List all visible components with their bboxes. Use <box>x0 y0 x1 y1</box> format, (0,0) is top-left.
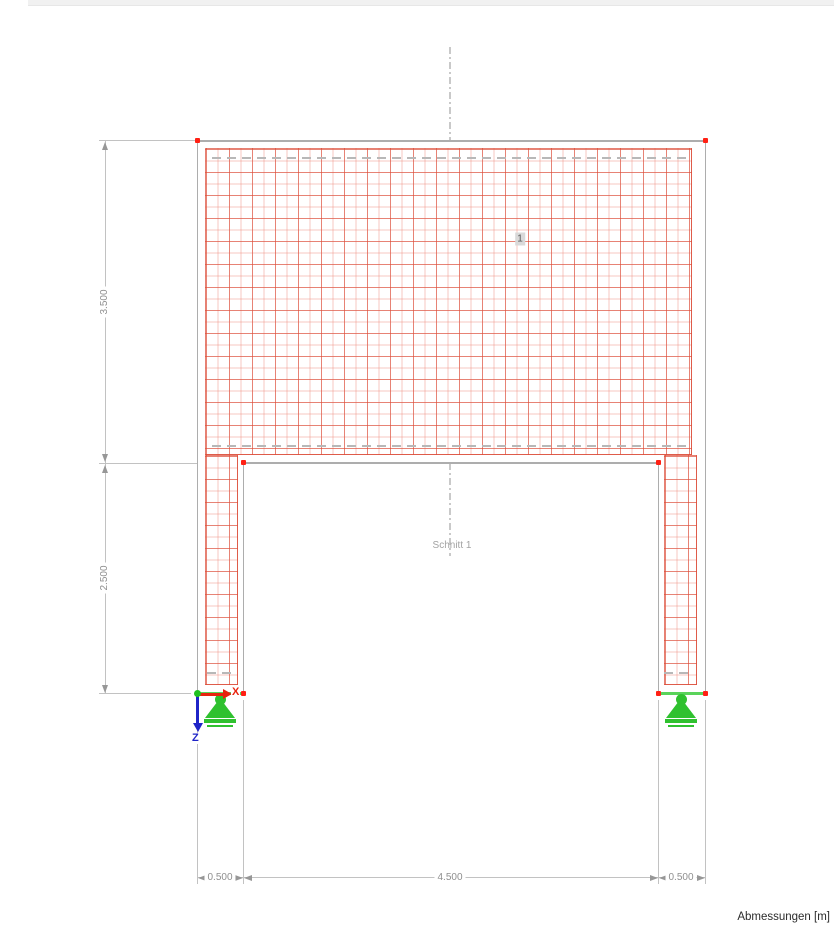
dim-arrow-icon <box>102 454 108 462</box>
section-label[interactable]: Schnitt 1 <box>410 540 494 552</box>
dim-label-width-right[interactable]: 0.500 <box>665 872 696 884</box>
member-axis-dash-left-base <box>207 672 237 674</box>
node-top-left[interactable] <box>195 138 200 143</box>
dim-ext-x1 <box>243 700 244 884</box>
toolbar-edge-strip <box>28 0 834 6</box>
hinged-support-icon[interactable] <box>205 703 235 718</box>
axis-z-label: Z <box>191 733 200 744</box>
axis-z-arrowhead-icon <box>193 723 203 732</box>
dim-ext-bottom <box>99 693 191 694</box>
hinged-support-icon[interactable] <box>666 703 696 718</box>
axis-z-arrow <box>196 694 199 723</box>
node-base-right-outer[interactable] <box>703 691 708 696</box>
dim-ext-x2 <box>658 700 659 884</box>
hinged-support-icon <box>207 725 233 727</box>
dim-label-width-middle[interactable]: 4.500 <box>434 872 465 884</box>
fe-mesh-surface-right-column[interactable] <box>664 455 697 685</box>
dim-label-height-lower[interactable]: 2.500 <box>99 562 111 593</box>
axis-x-label: X <box>231 687 240 698</box>
hinged-support-icon <box>668 725 694 727</box>
edge-right[interactable] <box>705 140 707 694</box>
dim-line-left <box>105 141 106 694</box>
axis-x-arrow <box>197 693 223 696</box>
edge-left[interactable] <box>197 140 199 694</box>
member-axis-dash-opening <box>212 445 691 447</box>
hinged-support-icon <box>665 719 697 723</box>
dim-arrow-icon <box>244 875 252 881</box>
dim-ext-mid <box>99 463 197 464</box>
edge-top[interactable] <box>197 140 705 142</box>
edge-opening-right[interactable] <box>658 463 660 694</box>
member-axis-dash-top <box>212 157 691 159</box>
dim-ext-x3 <box>705 700 706 884</box>
dim-arrow-icon <box>102 685 108 693</box>
model-viewport[interactable]: 3.500 2.500 0.500 4.500 0.500 X Z <box>0 0 834 934</box>
dim-arrow-icon <box>102 142 108 150</box>
hinged-support-icon <box>204 719 236 723</box>
edge-opening-top[interactable] <box>243 462 658 464</box>
dim-arrow-icon <box>650 875 658 881</box>
node-top-right[interactable] <box>703 138 708 143</box>
dim-label-width-left[interactable]: 0.500 <box>204 872 235 884</box>
member-axis-dash-right-base <box>664 672 694 674</box>
dim-arrow-icon <box>102 465 108 473</box>
units-label: Abmessungen [m] <box>737 910 830 924</box>
surface-number-label[interactable]: 1 <box>515 233 525 246</box>
section-line-upper <box>449 47 451 140</box>
dim-ext-top <box>99 140 197 141</box>
node-opening-top-right[interactable] <box>656 460 661 465</box>
node-base-right-inner[interactable] <box>656 691 661 696</box>
fe-mesh-surface-left-column[interactable] <box>205 455 238 685</box>
node-base-left-inner[interactable] <box>241 691 246 696</box>
node-opening-top-left[interactable] <box>241 460 246 465</box>
dim-arrow-icon <box>235 875 243 881</box>
edge-opening-left[interactable] <box>243 463 245 694</box>
origin-node[interactable] <box>194 690 201 697</box>
dim-label-height-upper[interactable]: 3.500 <box>99 286 111 317</box>
fe-mesh-surface-slab[interactable] <box>205 148 692 455</box>
dim-arrow-icon <box>697 875 705 881</box>
